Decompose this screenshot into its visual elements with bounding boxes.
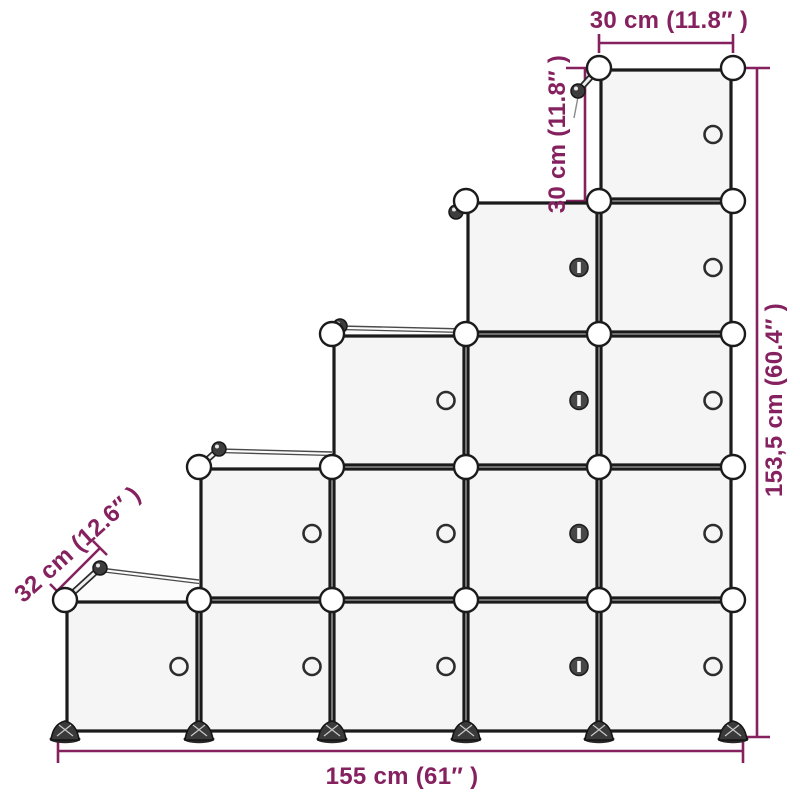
connector-ball <box>587 189 611 213</box>
connector-ball <box>320 455 344 479</box>
door-knob <box>438 392 455 409</box>
connector-ball <box>454 189 478 213</box>
connector-ball <box>721 588 745 612</box>
cubes <box>67 70 731 731</box>
connector-ball <box>454 322 478 346</box>
connector-ball <box>721 322 745 346</box>
door-knob <box>304 525 321 542</box>
connector-ball <box>454 455 478 479</box>
connector-ball <box>53 588 77 612</box>
connector-ball-back <box>571 84 585 98</box>
connector-ball <box>320 588 344 612</box>
connector-ball <box>187 588 211 612</box>
door-knob <box>438 525 455 542</box>
door-knob <box>438 658 455 675</box>
dimension-top-width <box>599 34 733 53</box>
door-knob <box>705 525 722 542</box>
door-knob <box>705 126 722 143</box>
dim-label-total-width: 155 cm (61″ ) <box>326 765 479 789</box>
door-knob <box>705 658 722 675</box>
connector-ball-back <box>93 561 107 575</box>
connector-ball <box>587 455 611 479</box>
connector-ball <box>587 588 611 612</box>
dim-label-total-height: 153,5 cm (60.4″ ) <box>763 303 787 497</box>
door-knob <box>705 392 722 409</box>
door-knob <box>304 658 321 675</box>
door-knob <box>171 658 188 675</box>
door-knob <box>705 259 722 276</box>
dimension-total-width <box>58 739 743 763</box>
connector-ball <box>721 189 745 213</box>
dim-label-top-width: 30 cm (11.8″ ) <box>590 9 748 33</box>
dim-label-cube-height: 30 cm (11.8″ ) <box>546 55 570 213</box>
connector-ball <box>187 455 211 479</box>
connector-ball <box>587 56 611 80</box>
cube-organizer-drawing <box>0 0 800 800</box>
product-dimension-diagram: 30 cm (11.8″ ) 30 cm (11.8″ ) 153,5 cm (… <box>0 0 800 800</box>
connector-ball <box>721 56 745 80</box>
connector-ball <box>721 455 745 479</box>
connector-ball-back <box>212 442 226 456</box>
connector-ball <box>320 322 344 346</box>
connector-ball <box>587 322 611 346</box>
connector-ball <box>454 588 478 612</box>
